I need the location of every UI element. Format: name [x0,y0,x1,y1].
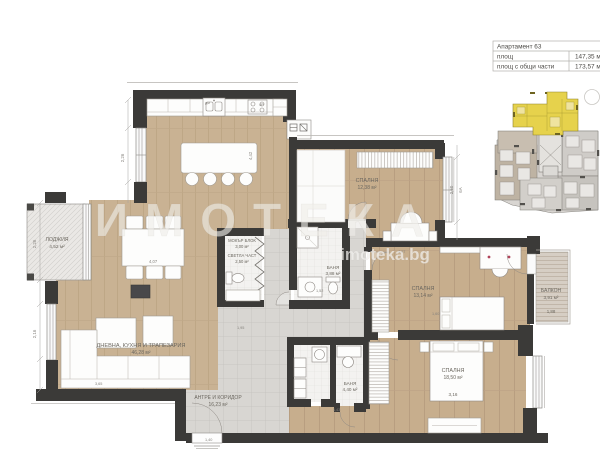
svg-text:1,40: 1,40 [205,438,212,442]
svg-text:12,38 м²: 12,38 м² [357,185,376,191]
svg-text:2,26: 2,26 [32,239,37,248]
svg-text:16,23 м²: 16,23 м² [208,402,227,408]
svg-text:1,95: 1,95 [237,326,244,330]
svg-text:4,52 м²: 4,52 м² [49,244,65,250]
svg-text:1,52: 1,52 [316,289,323,293]
svg-text:дм: дм [205,101,210,105]
svg-text:СВЕТЛА ЧАСТ: СВЕТЛА ЧАСТ [228,253,257,258]
svg-text:6А: 6А [458,187,463,192]
svg-text:СПАЛНЯ: СПАЛНЯ [412,286,435,292]
svg-text:13,14 м²: 13,14 м² [413,293,432,299]
svg-text:площ: площ [497,54,514,61]
svg-text:ЛОДЖИЯ: ЛОДЖИЯ [45,237,68,243]
svg-text:площ с общи части: площ с общи части [497,63,555,71]
svg-text:ДНЕВНА, КУХНЯ И ТРАПЕЗАРИЯ: ДНЕВНА, КУХНЯ И ТРАПЕЗАРИЯ [97,343,186,349]
svg-text:1,43: 1,43 [333,408,340,412]
svg-text:3,65: 3,65 [95,382,102,386]
svg-text:2,26: 2,26 [120,153,125,162]
svg-text:2,50: 2,50 [449,185,454,194]
svg-text:147,35 м²: 147,35 м² [575,54,600,61]
svg-text:БАНЯ: БАНЯ [327,265,340,270]
svg-text:3,88 м²: 3,88 м² [326,271,341,276]
svg-text:46,28 м²: 46,28 м² [131,350,150,356]
svg-text:4,07: 4,07 [149,259,158,264]
svg-text:3,16: 3,16 [449,392,458,397]
svg-text:СПАЛНЯ: СПАЛНЯ [442,368,465,374]
svg-text:Апартамент 63: Апартамент 63 [497,44,542,51]
svg-text:2,50 м²: 2,50 м² [235,259,249,264]
svg-text:1,88: 1,88 [547,309,556,314]
svg-text:4,40 м²: 4,40 м² [343,387,358,392]
svg-text:БАНЯ: БАНЯ [344,381,357,386]
svg-text:4,42: 4,42 [248,151,253,160]
svg-text:ИМОТЕКА: ИМОТЕКА [95,194,441,246]
svg-text:173,57 м²: 173,57 м² [575,64,600,71]
svg-text:БАЛКОН: БАЛКОН [541,288,562,294]
svg-text:2,16: 2,16 [32,329,37,338]
svg-text:АНТРЕ И КОРИДОР: АНТРЕ И КОРИДОР [194,395,242,401]
svg-text:1,60: 1,60 [432,312,439,316]
svg-text:3,91 м²: 3,91 м² [544,295,559,300]
svg-text:imoteka.bg: imoteka.bg [340,245,430,264]
svg-text:18,50 м²: 18,50 м² [443,375,462,381]
svg-text:СПАЛНЯ: СПАЛНЯ [356,178,379,184]
svg-text:4Р: 4Р [259,103,264,107]
